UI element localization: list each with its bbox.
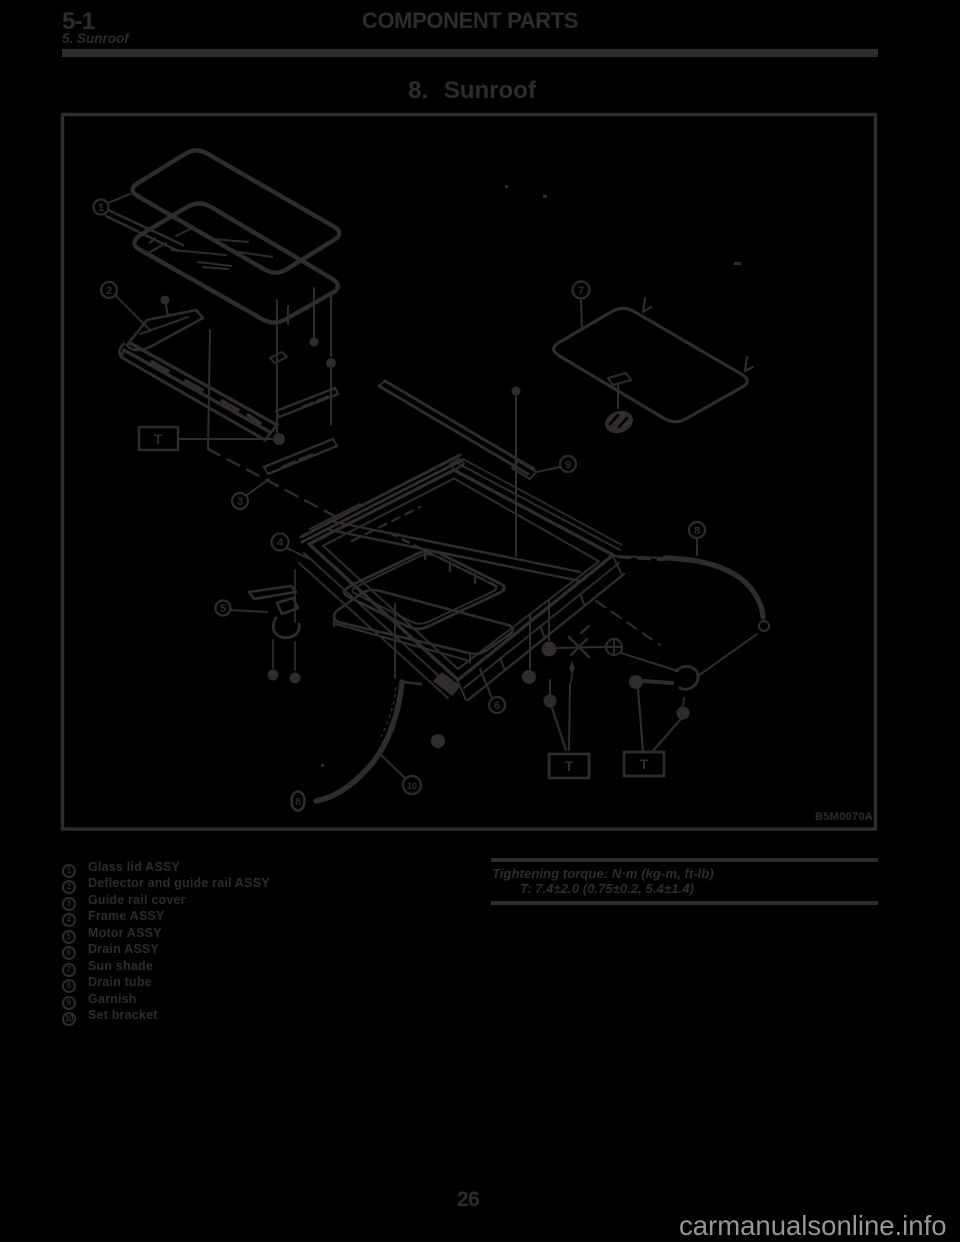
svg-text:3: 3 bbox=[237, 496, 243, 508]
svg-text:6: 6 bbox=[494, 700, 500, 712]
svg-text:8: 8 bbox=[295, 797, 301, 808]
svg-text:2: 2 bbox=[106, 285, 112, 297]
svg-text:9: 9 bbox=[565, 459, 571, 471]
svg-text:4: 4 bbox=[277, 537, 284, 549]
svg-text:7: 7 bbox=[578, 285, 584, 297]
svg-text:1: 1 bbox=[98, 202, 104, 214]
svg-text:5: 5 bbox=[220, 603, 226, 615]
svg-text:T: T bbox=[154, 431, 163, 447]
svg-text:10: 10 bbox=[407, 781, 417, 791]
svg-text:T: T bbox=[640, 756, 649, 772]
svg-text:8: 8 bbox=[694, 525, 700, 537]
svg-text:T: T bbox=[565, 758, 574, 774]
